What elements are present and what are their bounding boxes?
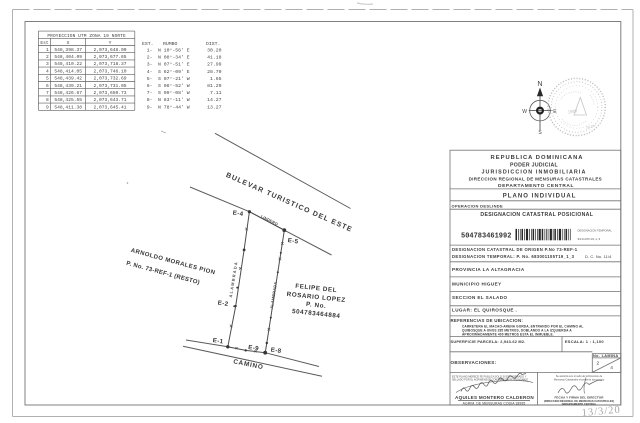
svg-text:PROYECCION UTM ZONA 19 NORTE: PROYECCION UTM ZONA 19 NORTE (47, 33, 126, 39)
svg-text:N 07°-51' E: N 07°-51' E (158, 62, 190, 68)
svg-text:E-2: E-2 (217, 300, 229, 308)
svg-text:2,073,718.37: 2,073,718.37 (93, 61, 126, 67)
svg-text:27.99: 27.99 (207, 62, 222, 68)
svg-text:REFERENCIAS DE UBICACION:: REFERENCIAS DE UBICACION: (451, 318, 524, 323)
svg-text:JURISDICCION INMOBILIARIA: JURISDICCION INMOBILIARIA (481, 169, 586, 175)
svg-text:3-: 3- (147, 62, 153, 68)
svg-text:504783461992: 504783461992 (461, 233, 511, 241)
svg-text:28.70: 28.70 (207, 69, 222, 75)
svg-text:2: 2 (597, 360, 600, 366)
svg-text:41.18: 41.18 (207, 55, 222, 61)
svg-text:548,398.37: 548,398.37 (54, 47, 82, 53)
svg-text:S 09°-08' W: S 09°-08' W (158, 90, 190, 96)
svg-text:X: X (67, 40, 70, 46)
svg-text:DEPARTAMENTO CENTRAL: DEPARTAMENTO CENTRAL (562, 402, 597, 406)
svg-text:3: 3 (46, 61, 49, 67)
svg-text:S: S (538, 130, 542, 136)
svg-text:DESIGNACION TEMPORAL: P. No. 6: DESIGNACION TEMPORAL: P. No. 683001105T1… (452, 254, 575, 259)
svg-text:REPUBLICA DOMINICANA: REPUBLICA DOMINICANA (491, 155, 584, 161)
svg-text:14.27: 14.27 (207, 97, 222, 103)
svg-text:DIST.: DIST. (206, 41, 220, 47)
svg-text:S 62°-09' E: S 62°-09' E (158, 69, 190, 75)
svg-text:ALAMBRADA: ALAMBRADA (269, 281, 278, 309)
svg-text:548,439.42: 548,439.42 (54, 76, 82, 82)
svg-text:CAMINO: CAMINO (233, 358, 264, 371)
svg-text:OPERACION DESLINDE: OPERACION DESLINDE (452, 203, 504, 208)
svg-text:6: 6 (46, 83, 49, 89)
svg-text:E-4: E-4 (232, 210, 244, 218)
svg-text:ESCALA: 1 : 1,100: ESCALA: 1 : 1,100 (565, 339, 604, 344)
svg-text:2,073,731.05: 2,073,731.05 (93, 83, 126, 89)
svg-text:Est: Est (40, 40, 49, 46)
svg-text:AQUILES MONTERO CALDERON: AQUILES MONTERO CALDERON (455, 395, 534, 400)
svg-text:504783464884: 504783464884 (292, 308, 341, 320)
svg-text:4-: 4- (147, 69, 153, 75)
svg-text:2,073,746.10: 2,073,746.10 (93, 68, 126, 74)
svg-text:548,414.05: 548,414.05 (54, 68, 82, 74)
svg-text:1: 1 (46, 47, 49, 53)
svg-text:2: 2 (46, 54, 49, 60)
svg-text:9: 9 (46, 104, 49, 110)
svg-text:13.27: 13.27 (207, 104, 222, 110)
svg-text:2,073,732.69: 2,073,732.69 (93, 76, 126, 82)
svg-text:DESIGNACION CATASTRAL DE ORIGE: DESIGNACION CATASTRAL DE ORIGEN P.No 73-… (452, 247, 578, 252)
svg-text:Y: Y (109, 40, 112, 46)
svg-text:PLANO INDIVIDUAL: PLANO INDIVIDUAL (503, 193, 577, 199)
svg-text:8-: 8- (147, 97, 153, 103)
svg-text:DESIGNACION CATASTRAL POSICION: DESIGNACION CATASTRAL POSICIONAL (480, 212, 593, 218)
svg-text:E-8: E-8 (270, 347, 282, 355)
svg-text:W: W (522, 109, 527, 115)
svg-text:6-: 6- (147, 83, 153, 89)
svg-text:2,073,643.71: 2,073,643.71 (93, 97, 126, 103)
svg-text:DIRECCION REGIONAL DE MENSURAS: DIRECCION REGIONAL DE MENSURAS CATASTRAL… (469, 176, 602, 181)
svg-text:Mensuras Catastrales el presen: Mensuras Catastrales el presente documen… (554, 378, 605, 381)
svg-text:5: 5 (46, 76, 49, 82)
svg-text:1.65: 1.65 (210, 76, 222, 82)
svg-text:APROXIMADAMENTE 400 METROS EST: APROXIMADAMENTE 400 METROS ESTA EL INMUE… (462, 333, 554, 337)
svg-text:N: N (537, 79, 542, 88)
svg-text:EST.: EST. (142, 41, 154, 47)
svg-text:E-5: E-5 (287, 237, 299, 245)
svg-text:4: 4 (610, 365, 613, 371)
svg-text:7-: 7- (147, 90, 153, 96)
svg-text:N 83°-11' W: N 83°-11' W (158, 97, 190, 103)
svg-text:30.20: 30.20 (207, 48, 222, 54)
svg-text:PROVINCIA LA ALTAGRACIA: PROVINCIA LA ALTAGRACIA (452, 267, 525, 272)
svg-text:No. LAMINA: No. LAMINA (593, 354, 618, 358)
svg-text:S 08°-52' W: S 08°-52' W (158, 83, 190, 89)
svg-text:DEPARTAMENTO CENTRAL: DEPARTAMENTO CENTRAL (498, 183, 574, 189)
svg-text:548,426.67: 548,426.67 (54, 90, 82, 96)
svg-text:2,073,650.73: 2,073,650.73 (93, 90, 126, 96)
svg-text:81.29: 81.29 (207, 83, 222, 89)
svg-text:DESIGNACION TEMPORAL: DESIGNACION TEMPORAL (578, 229, 613, 233)
svg-text:301105/19,1,3: 301105/19,1,3 (578, 237, 601, 241)
svg-text:LUGAR: EL QUIROSQUE .: LUGAR: EL QUIROSQUE . (452, 308, 517, 313)
svg-text:548,439.21: 548,439.21 (54, 83, 82, 89)
svg-text:4: 4 (46, 68, 49, 74)
svg-text:S 07°-21' W: S 07°-21' W (158, 76, 190, 82)
svg-text:OBSERVACIONES:: OBSERVACIONES: (451, 360, 497, 365)
svg-text:MUNICIPIO HIGUEY: MUNICIPIO HIGUEY (452, 282, 502, 287)
svg-text:1980: 1980 (567, 108, 578, 114)
svg-text:548,410.22: 548,410.22 (54, 61, 82, 67)
svg-text:D. C. No. 11/4: D. C. No. 11/4 (585, 254, 612, 259)
svg-text:5-: 5- (147, 76, 153, 82)
svg-text:2,073,648.00: 2,073,648.00 (93, 47, 126, 53)
svg-text:548,411.38: 548,411.38 (54, 104, 82, 110)
svg-text:SUPERFICIE PARCELA: 2,943.62 M: SUPERFICIE PARCELA: 2,943.62 M2. (451, 339, 526, 344)
svg-text:N 08°-34' E: N 08°-34' E (158, 55, 190, 61)
svg-text:JW BU: JW BU (585, 123, 597, 130)
svg-text:548,425.55: 548,425.55 (54, 97, 82, 103)
svg-text:N 10°-56' E: N 10°-56' E (158, 48, 190, 54)
svg-text:8: 8 (46, 97, 49, 103)
svg-text:PODER JUDICIAL: PODER JUDICIAL (510, 163, 559, 169)
svg-text:SECCION EL SALADO: SECCION EL SALADO (452, 295, 507, 300)
svg-text:2-: 2- (147, 55, 153, 61)
svg-text:P. No.: P. No. (306, 301, 327, 310)
svg-text:ALAMBRADA: ALAMBRADA (228, 261, 239, 298)
svg-text:7.11: 7.11 (210, 90, 222, 96)
svg-text:2,073,645.41: 2,073,645.41 (93, 104, 126, 110)
svg-text:RUMBO: RUMBO (163, 41, 178, 47)
svg-text:1-: 1- (147, 48, 153, 54)
svg-text:7: 7 (46, 90, 49, 96)
svg-text:2,073,677.65: 2,073,677.65 (93, 54, 126, 60)
svg-text:548,404.09: 548,404.09 (54, 54, 82, 60)
svg-text:9-: 9- (147, 104, 153, 110)
svg-text:LINDERO: LINDERO (260, 215, 279, 227)
svg-text:N 78°-44' W: N 78°-44' W (158, 104, 190, 110)
svg-text:BULEVAR TURISTICO DEL ESTE: BULEVAR TURISTICO DEL ESTE (225, 172, 354, 234)
